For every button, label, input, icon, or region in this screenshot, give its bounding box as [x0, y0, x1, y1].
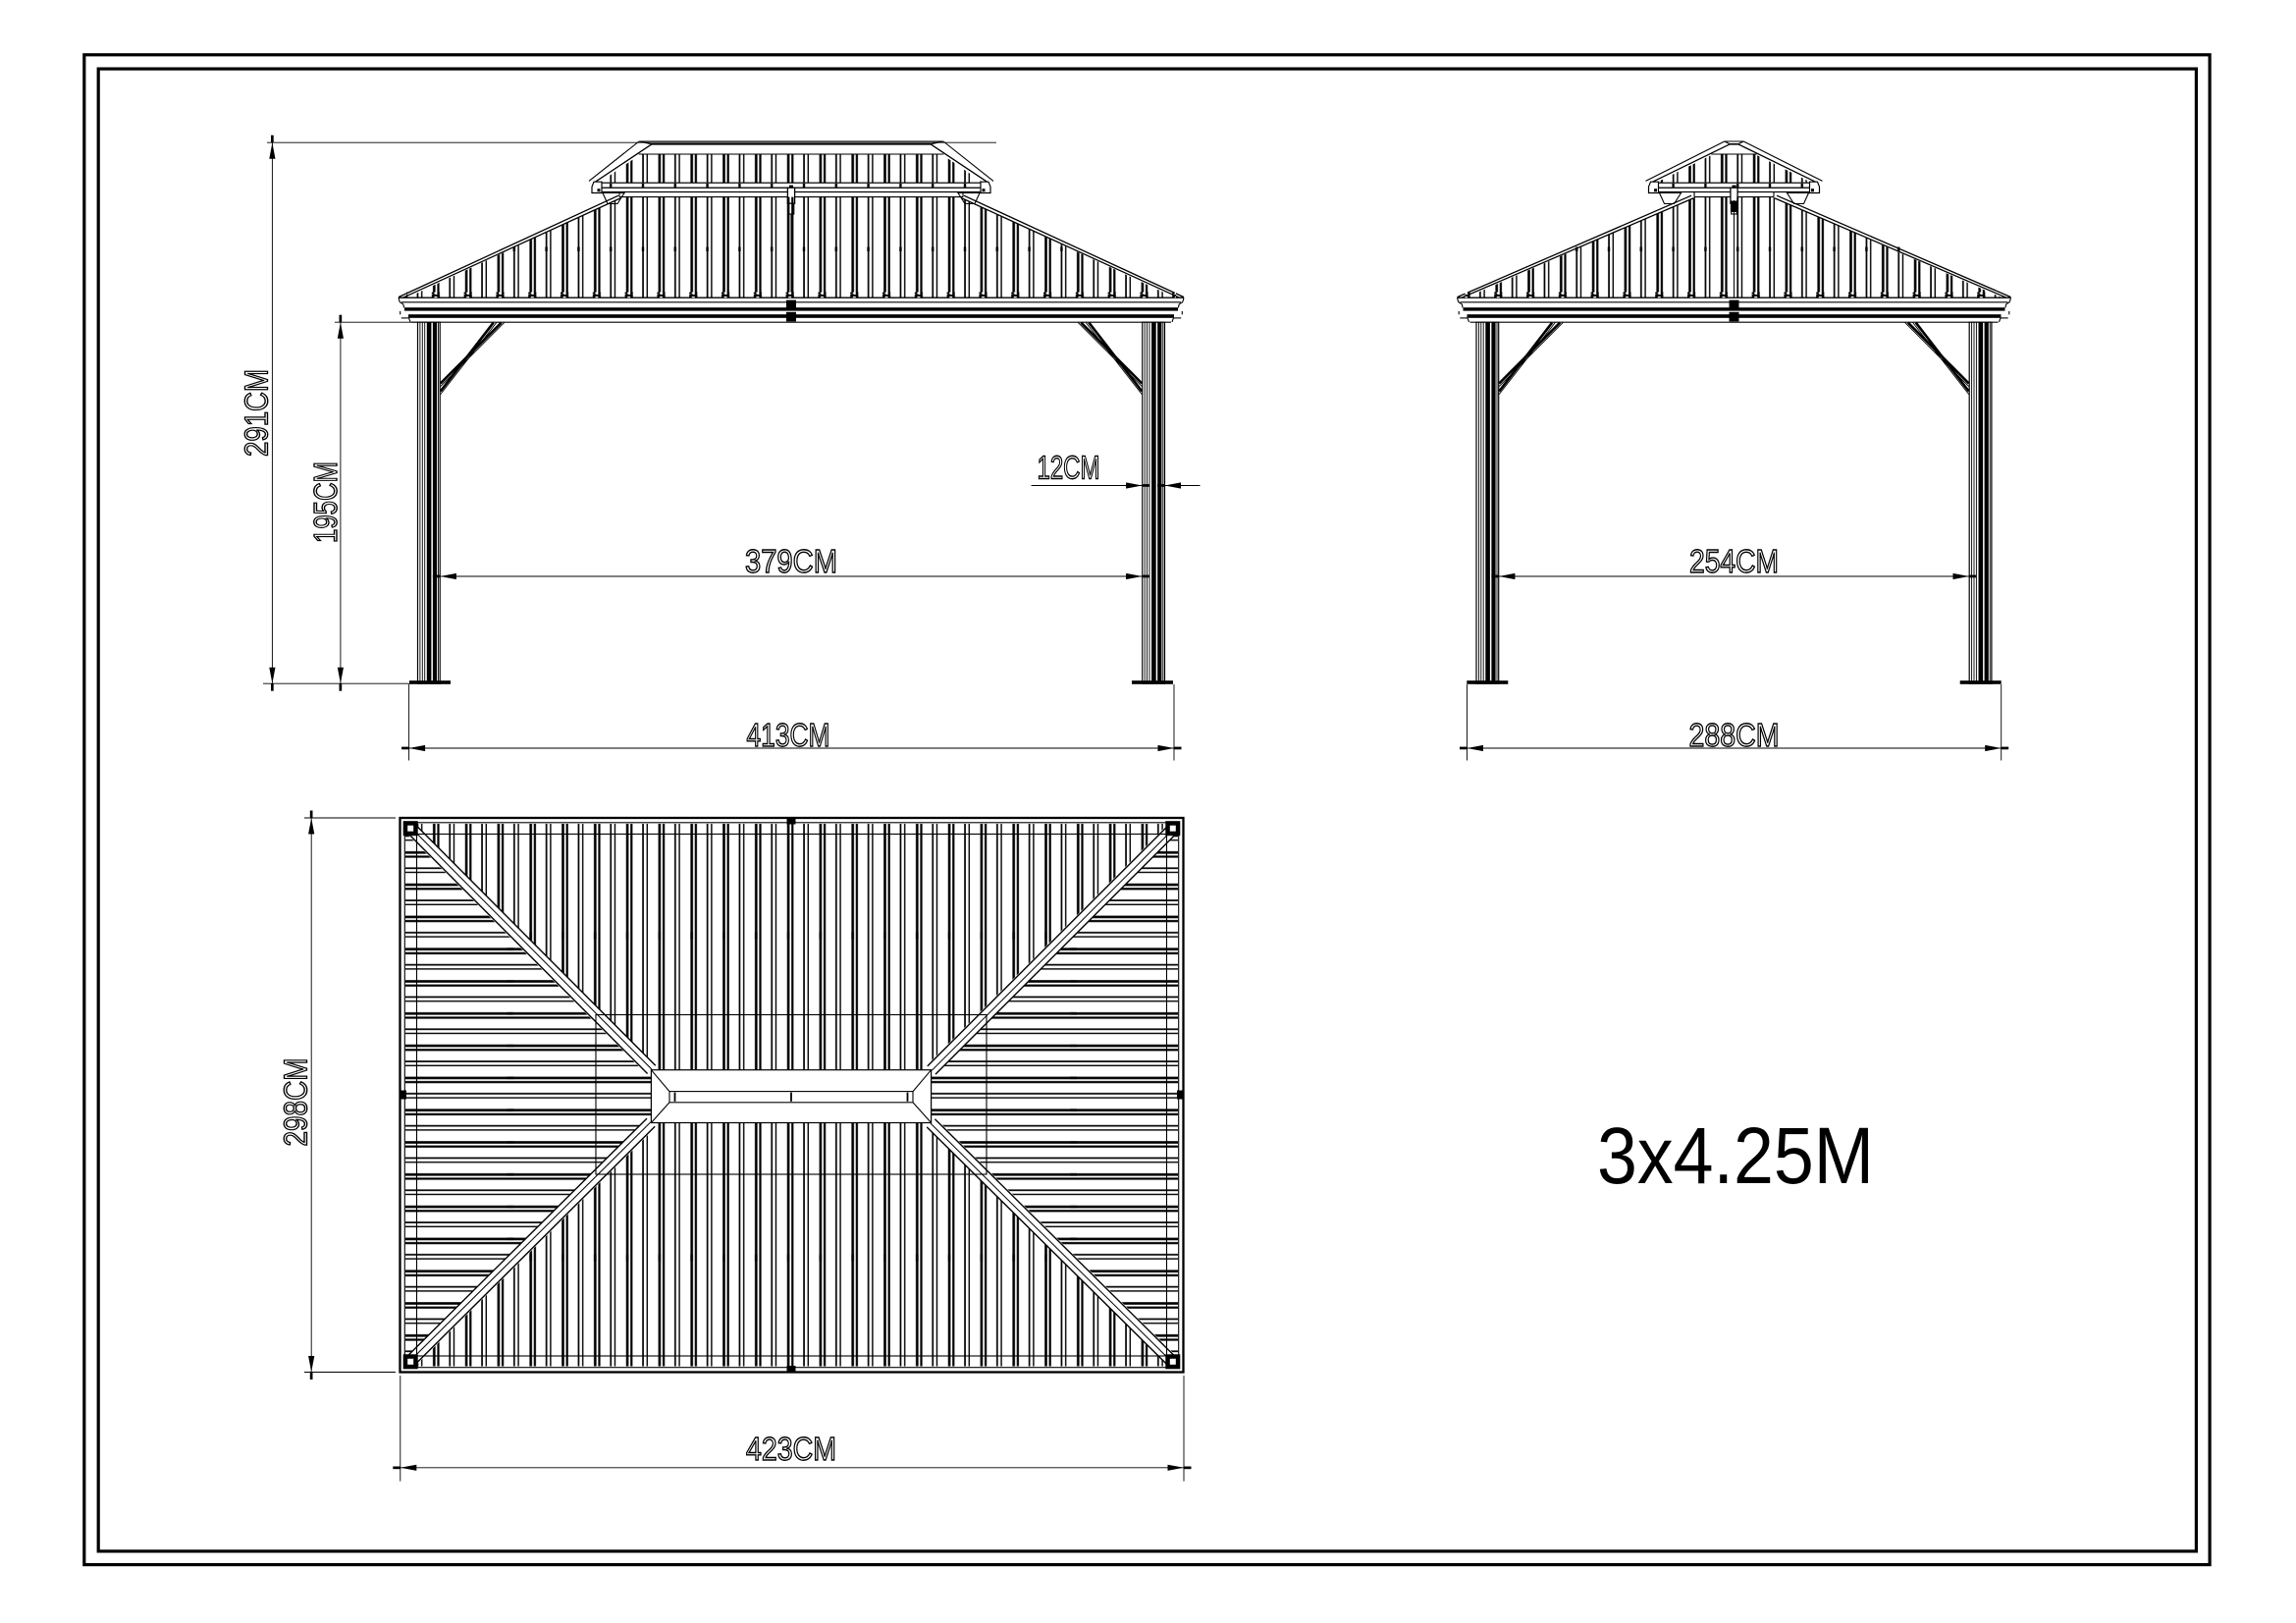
svg-text:379CM: 379CM: [745, 543, 837, 579]
svg-text:288CM: 288CM: [1689, 717, 1780, 753]
svg-text:12CM: 12CM: [1038, 450, 1100, 486]
svg-text:291CM: 291CM: [239, 369, 275, 457]
svg-text:298CM: 298CM: [278, 1058, 314, 1147]
svg-text:3x4.25M: 3x4.25M: [1597, 1111, 1874, 1201]
svg-text:254CM: 254CM: [1689, 543, 1779, 579]
svg-text:423CM: 423CM: [746, 1431, 836, 1467]
svg-text:413CM: 413CM: [747, 717, 830, 753]
svg-text:195CM: 195CM: [307, 461, 344, 543]
